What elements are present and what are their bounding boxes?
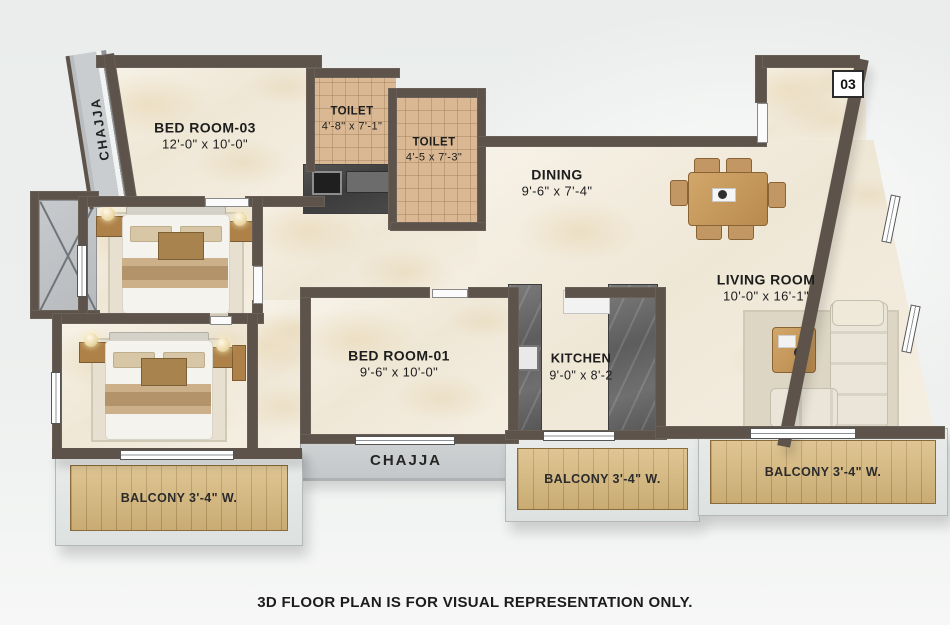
toilet1-name: TOILET (322, 104, 383, 119)
window-living (750, 428, 856, 439)
disclaimer-caption: 3D FLOOR PLAN IS FOR VISUAL REPRESENTATI… (0, 594, 950, 611)
wall-bedroom1-left (300, 292, 311, 444)
balcony-middle-deck: BALCONY 3'-4" W. (517, 448, 688, 510)
bedroom3-name: BED ROOM-03 (154, 118, 256, 136)
wall-bedroom1-top (300, 287, 430, 298)
living-name: LIVING ROOM (717, 270, 816, 288)
bed-b-blanket (105, 384, 211, 414)
door-bedroom1 (432, 289, 468, 298)
corridor-floor-lower (258, 300, 303, 450)
kitchen-label: KITCHEN 9'-0" x 8'-2 (549, 350, 612, 383)
wall-kitchen-top-stub (565, 287, 665, 298)
chajja-left-label: CHAJJA (87, 97, 112, 163)
wall-entry-top (762, 55, 860, 68)
bedroom3-dims: 12'-0" x 10'-0" (154, 137, 256, 154)
wall-toilet2-bottom (390, 222, 486, 231)
bed-b-tray (141, 358, 187, 386)
wall-dining-top (477, 136, 767, 147)
window-bedroom1 (355, 436, 455, 445)
window-bedroom-bottom (120, 450, 234, 460)
door-bedroom-bottom (210, 316, 232, 325)
toilet1-label: TOILET 4'-8" x 7'-1" (322, 104, 383, 133)
unit-number-badge: 03 (832, 70, 864, 98)
wall-bedroom-bottom-divider-b (228, 313, 264, 324)
window-bedroom-bottom-left (51, 372, 61, 424)
bed-a-lamp-left (101, 207, 115, 221)
balcony-right-deck: BALCONY 3'-4" W. (710, 440, 936, 504)
wall-toilet2-top (390, 88, 486, 98)
chajja-bottom-ledge: CHAJJA (300, 441, 512, 481)
bed-a-lamp-right (233, 212, 247, 226)
chajja-bottom-label: CHAJJA (370, 452, 442, 469)
bedroom3-label: BED ROOM-03 12'-0" x 10'-0" (154, 118, 256, 153)
dining-chair (670, 180, 688, 206)
door-entry (757, 103, 768, 143)
sofa-corner-cushion (832, 300, 884, 326)
window-bedroom-mid-left (77, 245, 87, 297)
balcony-middle-label: BALCONY 3'-4" W. (544, 472, 660, 486)
kitchen-dims: 9'-0" x 8'-2 (549, 367, 612, 383)
wall-bedrooms-divider-a (80, 196, 205, 207)
bedroom1-label: BED ROOM-01 9'-6" x 10'-0" (348, 346, 450, 381)
living-dims: 10'-0" x 16'-1" (717, 289, 816, 306)
living-label: LIVING ROOM 10'-0" x 16'-1" (717, 270, 816, 305)
vanity-sink (312, 171, 342, 195)
toilet2-name: TOILET (406, 135, 462, 150)
duct-shaft (39, 200, 97, 312)
balcony-left-label: BALCONY 3'-4" W. (121, 491, 237, 505)
wall-toilet2-right (477, 88, 486, 230)
wall-bedroom1-right (508, 287, 519, 444)
door-bedroom3 (205, 198, 249, 207)
dining-name: DINING (522, 165, 593, 183)
dining-label: DINING 9'-6" x 7'-4" (522, 165, 593, 200)
wall-bedroom3-top (96, 55, 322, 68)
wall-toilet1-left (306, 68, 315, 172)
bed-b-bench (232, 345, 246, 381)
balcony-left-deck: BALCONY 3'-4" W. (70, 465, 288, 531)
balcony-right-label: BALCONY 3'-4" W. (765, 465, 881, 479)
toilet2-label: TOILET 4'-5 x 7'-3" (406, 135, 462, 164)
dining-dims: 9'-6" x 7'-4" (522, 184, 593, 201)
wall-toilet-divider (388, 88, 397, 230)
window-kitchen (543, 431, 615, 441)
dining-chair (768, 182, 786, 208)
bedroom1-dims: 9'-6" x 10'-0" (348, 365, 450, 382)
toilet1-dims: 4'-8" x 7'-1" (322, 119, 383, 133)
dining-table-item (718, 190, 727, 199)
wall-bedroom-bottom-divider-a (58, 313, 210, 324)
bedroom1-name: BED ROOM-01 (348, 346, 450, 364)
bed-b-lamp-right (216, 338, 230, 352)
kitchen-counter-right (608, 284, 658, 436)
bed-a-tray (158, 232, 204, 260)
wall-toilet1-top (306, 68, 400, 78)
door-bedroom-mid (253, 266, 263, 304)
shaft-wall-left (30, 191, 39, 319)
wall-bedroom-mid-right-upper (252, 196, 263, 266)
bed-b-lamp-left (84, 333, 98, 347)
kitchen-name: KITCHEN (549, 350, 612, 367)
floor-plan-canvas: CHAJJA CHAJJA BALCONY 3'-4" W. BALCONY 3… (0, 0, 950, 625)
sofa-bottom-section (770, 388, 838, 428)
wall-kitchen-right (655, 287, 666, 438)
coffee-table-book (778, 335, 796, 348)
wall-bedroom-bottom-right (247, 313, 258, 453)
vanity-top (346, 171, 390, 193)
toilet2-dims: 4'-5 x 7'-3" (406, 150, 462, 164)
bed-a-blanket (122, 258, 228, 288)
